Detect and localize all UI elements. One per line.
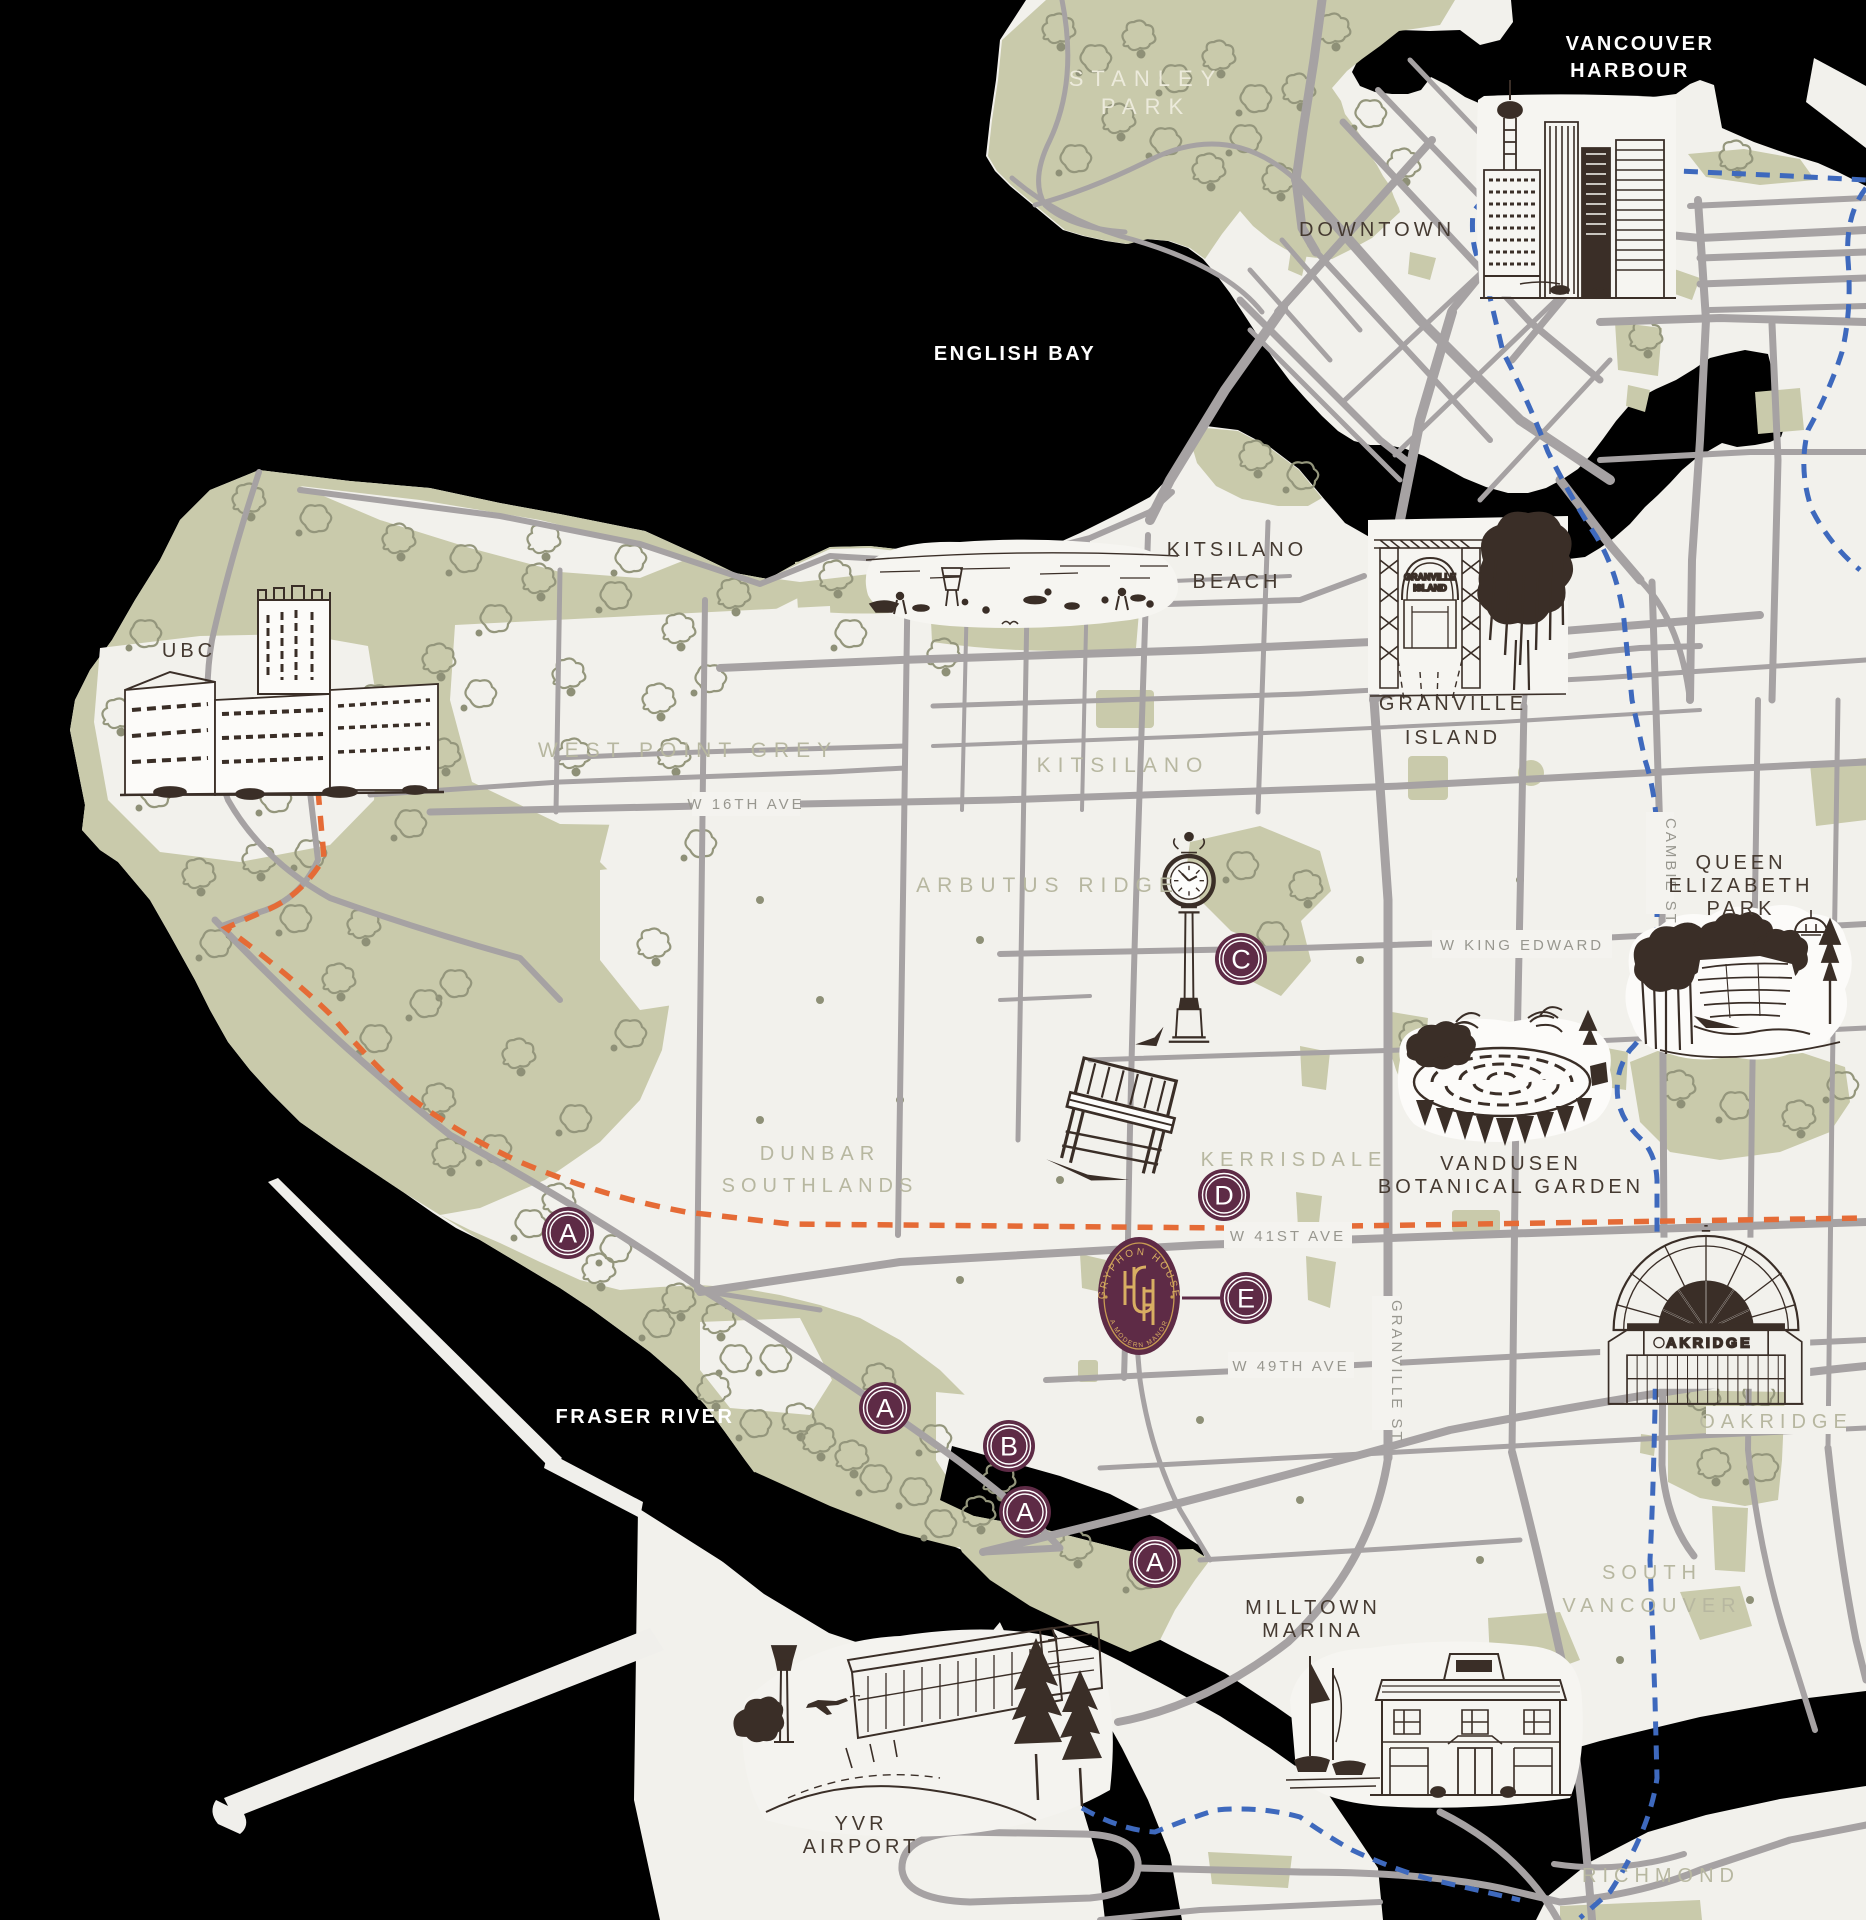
svg-text:HARBOUR: HARBOUR — [1570, 60, 1690, 82]
svg-text:KITSILANO: KITSILANO — [1167, 539, 1307, 561]
svg-text:BEACH: BEACH — [1193, 571, 1282, 593]
svg-text:SOUTH: SOUTH — [1602, 1562, 1702, 1584]
svg-text:FRASER RIVER: FRASER RIVER — [556, 1406, 735, 1428]
svg-text:BOTANICAL GARDEN: BOTANICAL GARDEN — [1378, 1176, 1644, 1198]
svg-text:VANCOUVER: VANCOUVER — [1566, 33, 1715, 55]
svg-text:CAMBIE ST: CAMBIE ST — [1662, 818, 1679, 926]
svg-text:GRANVILLE: GRANVILLE — [1379, 693, 1527, 715]
svg-text:D: D — [1214, 1181, 1234, 1211]
svg-text:GRANVILLE: GRANVILLE — [1404, 572, 1456, 582]
svg-text:OAKRIDGE: OAKRIDGE — [1699, 1411, 1853, 1433]
svg-text:W 49TH AVE: W 49TH AVE — [1232, 1358, 1349, 1375]
svg-text:W KING EDWARD: W KING EDWARD — [1440, 937, 1604, 954]
svg-text:AIRPORT: AIRPORT — [803, 1836, 920, 1858]
svg-text:GRANVILLE ST: GRANVILLE ST — [1388, 1300, 1405, 1444]
svg-text:C: C — [1231, 945, 1251, 975]
svg-text:W 41ST AVE: W 41ST AVE — [1230, 1228, 1346, 1245]
svg-text:A: A — [559, 1219, 577, 1249]
svg-text:B: B — [1000, 1432, 1018, 1462]
svg-text:ENGLISH BAY: ENGLISH BAY — [934, 343, 1096, 365]
svg-text:PARK: PARK — [1707, 898, 1776, 920]
svg-text:ISLAND: ISLAND — [1413, 583, 1447, 593]
svg-text:KITSILANO: KITSILANO — [1037, 754, 1210, 777]
svg-text:A: A — [1146, 1548, 1164, 1578]
svg-text:YVR: YVR — [834, 1813, 887, 1835]
svg-text:PARK: PARK — [1101, 94, 1191, 119]
svg-text:QUEEN: QUEEN — [1695, 852, 1786, 874]
svg-text:A: A — [1016, 1498, 1034, 1528]
svg-text:ARBUTUS RIDGE: ARBUTUS RIDGE — [916, 874, 1180, 897]
svg-text:MILLTOWN: MILLTOWN — [1245, 1597, 1381, 1619]
svg-text:KERRISDALE: KERRISDALE — [1201, 1149, 1388, 1171]
svg-text:E: E — [1237, 1284, 1255, 1314]
svg-text:SOUTHLANDS: SOUTHLANDS — [722, 1175, 919, 1197]
svg-text:ELIZABETH: ELIZABETH — [1669, 875, 1814, 897]
svg-text:VANDUSEN: VANDUSEN — [1440, 1153, 1582, 1175]
svg-text:W 16TH AVE: W 16TH AVE — [687, 796, 804, 813]
svg-text:AKRIDGE: AKRIDGE — [1666, 1336, 1752, 1352]
svg-text:A: A — [876, 1394, 894, 1424]
svg-text:STANLEY: STANLEY — [1069, 66, 1224, 91]
svg-text:ISLAND: ISLAND — [1405, 727, 1501, 749]
svg-text:RICHMOND: RICHMOND — [1582, 1865, 1740, 1887]
svg-text:VANCOUVER: VANCOUVER — [1562, 1595, 1741, 1617]
svg-text:UBC: UBC — [162, 640, 216, 662]
svg-text:DOWNTOWN: DOWNTOWN — [1299, 219, 1455, 241]
svg-text:WEST POINT GREY: WEST POINT GREY — [538, 739, 838, 762]
svg-text:DUNBAR: DUNBAR — [760, 1143, 880, 1165]
svg-text:MARINA: MARINA — [1262, 1620, 1364, 1642]
